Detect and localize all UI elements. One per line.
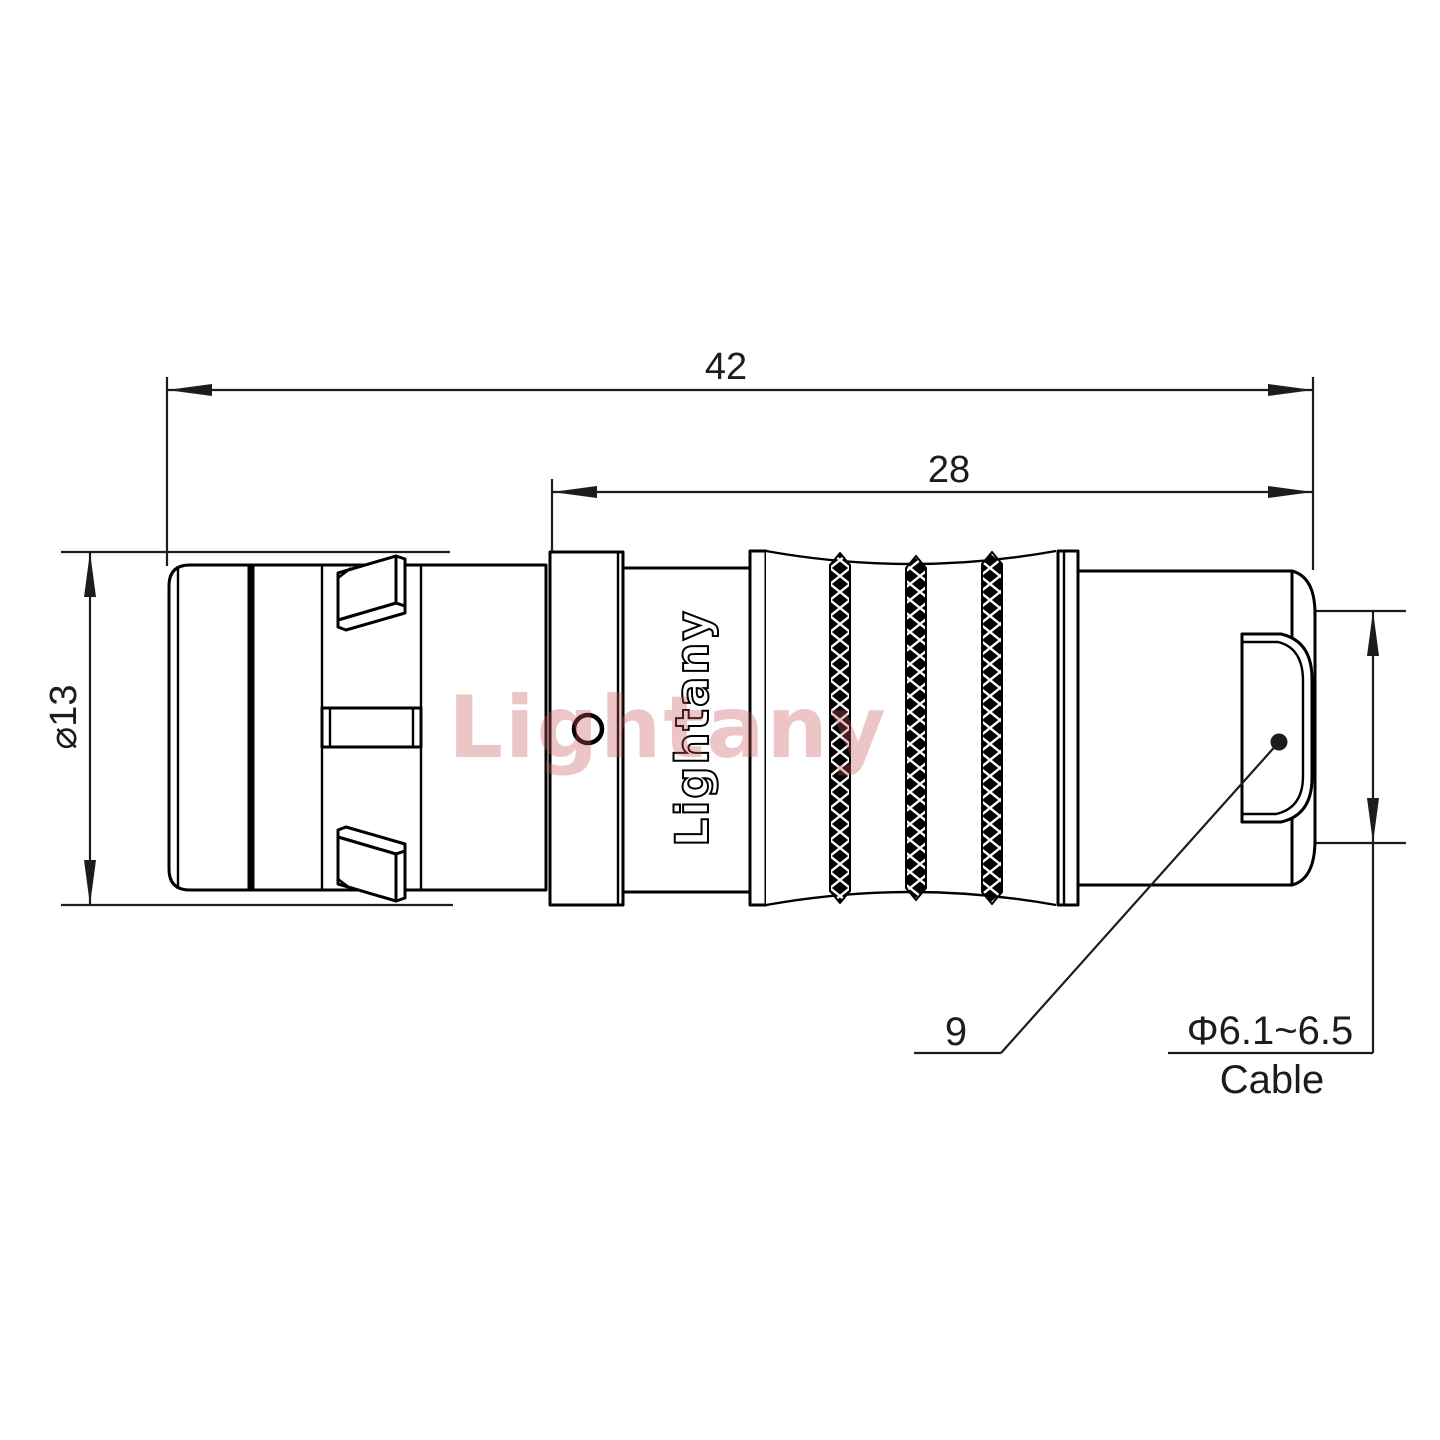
callout-9-label: 9 <box>945 1010 967 1054</box>
technical-drawing-page: Lightany 42 <box>0 0 1440 1440</box>
knurl-band <box>982 552 1002 904</box>
dim-13-label: ⌀13 <box>43 684 85 749</box>
knurl-band <box>906 556 926 900</box>
latch-key-band <box>322 708 421 747</box>
rear-shell <box>1078 571 1315 885</box>
dim-42-label: 42 <box>705 346 747 388</box>
callout-dot <box>1271 734 1288 751</box>
watermark-text: Lightany <box>448 678 888 778</box>
dimension-overall-length: 42 <box>167 346 1313 570</box>
dimension-mid-length: 28 <box>552 449 1313 551</box>
connector-drawing: Lightany 42 <box>0 0 1440 1440</box>
cable-word-label: Cable <box>1220 1058 1325 1102</box>
knurl-flange-right <box>1058 551 1078 905</box>
dim-28-label: 28 <box>928 449 970 491</box>
cable-range-label: Φ6.1~6.5 <box>1187 1009 1353 1053</box>
